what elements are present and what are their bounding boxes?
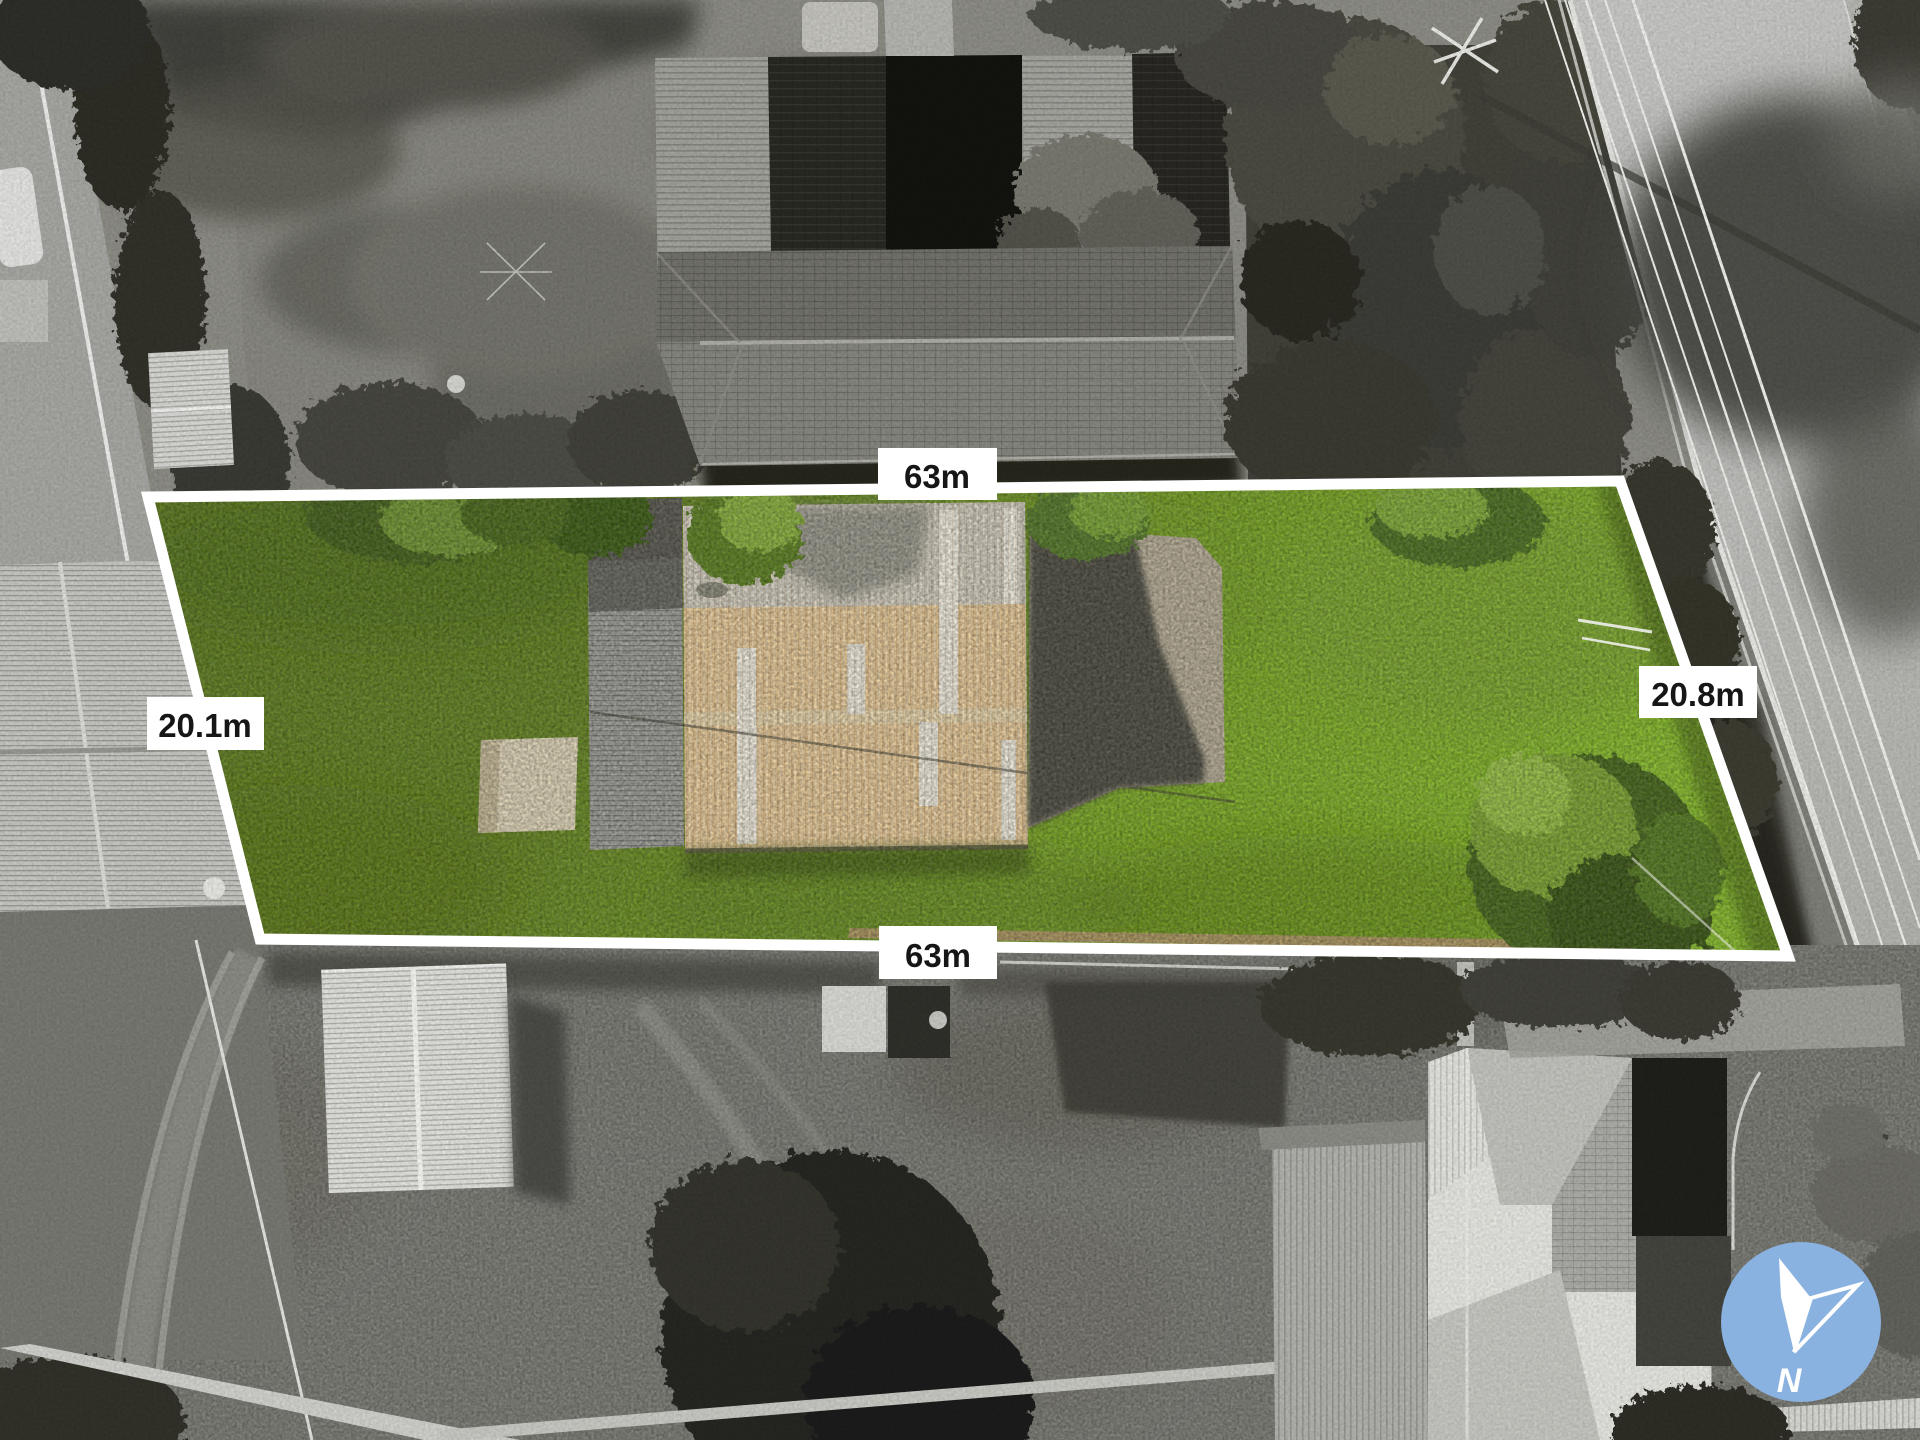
svg-text:63m: 63m	[905, 937, 971, 974]
svg-text:N: N	[1777, 1362, 1803, 1400]
svg-text:20.8m: 20.8m	[1651, 676, 1745, 713]
svg-text:63m: 63m	[904, 458, 970, 495]
svg-text:20.1m: 20.1m	[158, 707, 252, 744]
